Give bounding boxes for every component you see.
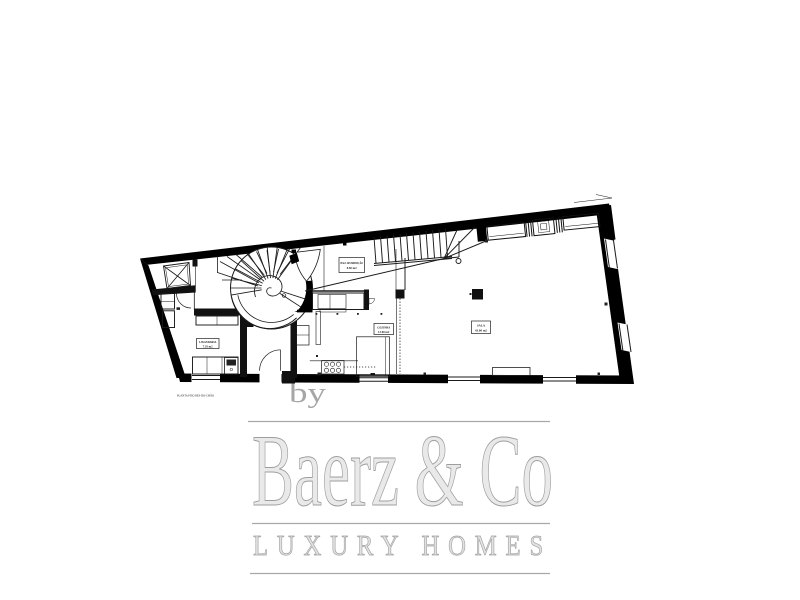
svg-text:13.00 m2: 13.00 m2 xyxy=(378,330,390,334)
svg-text:COZINHA: COZINHA xyxy=(377,326,390,330)
svg-text:7.35 m2: 7.35 m2 xyxy=(203,345,213,349)
svg-text:8.50 m2: 8.50 m2 xyxy=(347,266,357,270)
svg-text:43.00 m2: 43.00 m2 xyxy=(475,329,487,333)
svg-text:SALA: SALA xyxy=(477,324,485,328)
svg-text:Baerz & Co: Baerz & Co xyxy=(252,414,553,528)
svg-text:LAVANDARIA: LAVANDARIA xyxy=(199,340,217,344)
svg-text:PLANTA PISO RES-DO-CHÃO: PLANTA PISO RES-DO-CHÃO xyxy=(177,393,214,398)
svg-text:LUXURY HOMES: LUXURY HOMES xyxy=(253,531,552,562)
svg-text:HALL DISTRIBUIÇÃO: HALL DISTRIBUIÇÃO xyxy=(340,260,363,265)
